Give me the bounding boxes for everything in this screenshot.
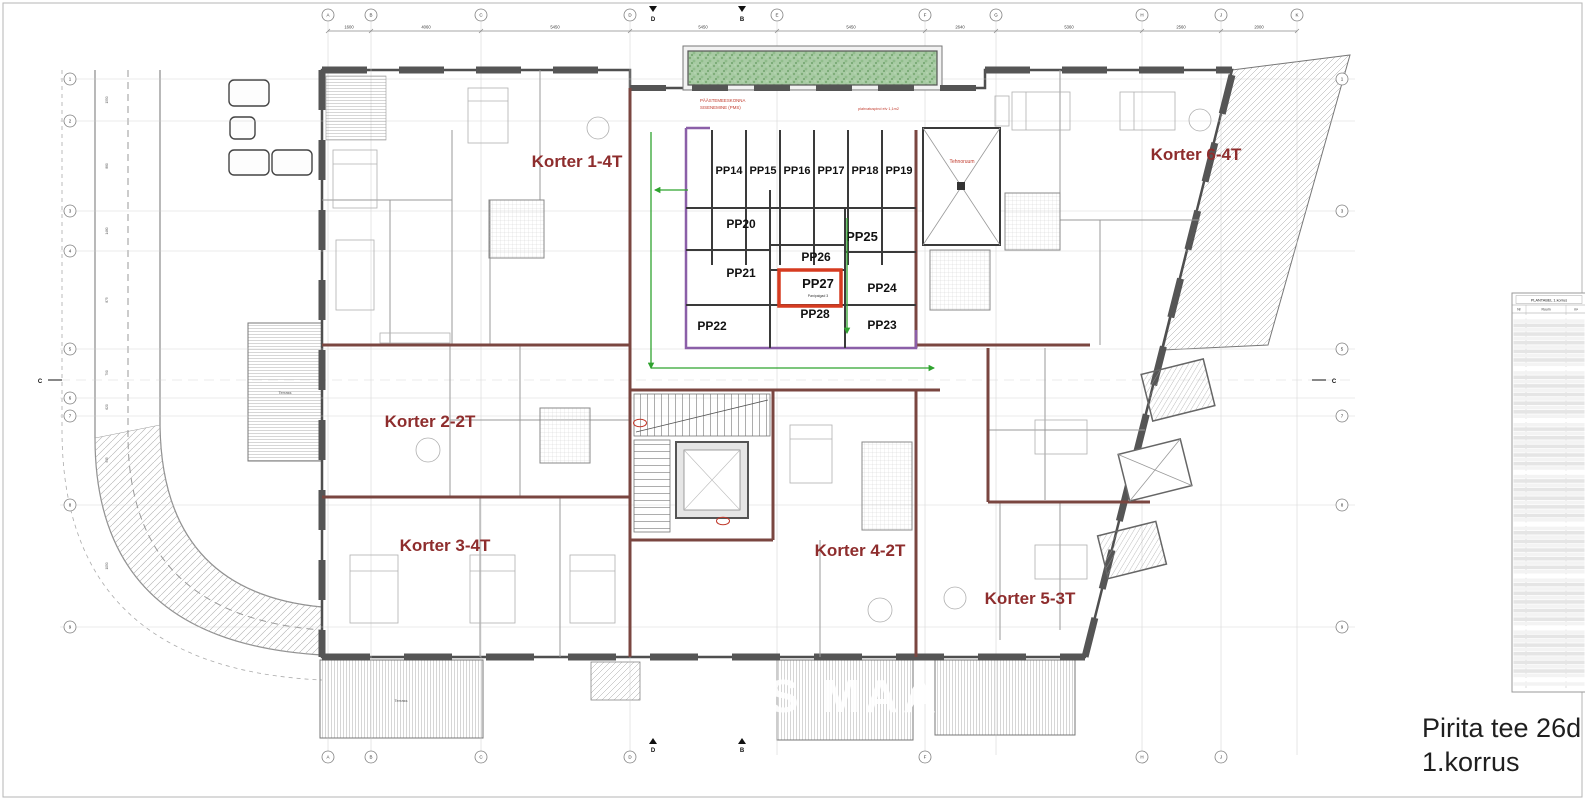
dimension: 790 — [105, 370, 109, 376]
grid-label: J — [1220, 755, 1222, 760]
storage-unit-label: PP25 — [846, 229, 878, 244]
apartment-label: Korter 4-2T — [815, 541, 906, 560]
grid-label: E — [775, 13, 778, 18]
grid-label: A — [326, 13, 329, 18]
grid-label: J — [1220, 13, 1222, 18]
rescue-note-line2: SISENEMINE (PMS) — [700, 105, 741, 110]
dimension: 2000 — [1254, 25, 1264, 30]
rescue-note-line1: PÄÄSTEMEESKONNA — [700, 98, 745, 103]
dimension: 1550 — [105, 96, 109, 103]
dimension: 5450 — [846, 25, 856, 30]
dimension: 2640 — [955, 25, 965, 30]
terrace-label: Terrass — [278, 390, 291, 395]
storage-unit-label: PP26 — [801, 250, 831, 264]
tech-room-label: Tehnoruum — [949, 159, 974, 165]
storage-unit-label: PP21 — [726, 266, 756, 280]
grid-label: B — [369, 755, 372, 760]
storage-unit-label: PP28 — [800, 307, 830, 321]
dimension: 4060 — [421, 25, 431, 30]
dimension: 5450 — [550, 25, 560, 30]
dimension: 5360 — [1064, 25, 1074, 30]
storage-unit-label: PP22 — [697, 319, 727, 333]
section-marker-label: C — [1332, 379, 1337, 385]
dimension: 5450 — [698, 25, 708, 30]
storage-unit-label: PP14 — [716, 165, 744, 177]
room-schedule-table: PLANTABEL 1.korrus Nr Ruum m² — [1512, 293, 1585, 692]
storage-unit-label: PP24 — [867, 281, 897, 295]
section-marker-label: C — [38, 379, 43, 385]
dimension: 620 — [105, 404, 109, 410]
section-marker-label: D — [651, 748, 656, 754]
section-marker-label: B — [740, 748, 745, 754]
grid-label: H — [1140, 13, 1143, 18]
watermark: S MAA — [768, 670, 941, 722]
floor-plan-sheet: A B C D E F G H J K 1600 4060 5450 5450 … — [0, 0, 1585, 800]
apartment-label: Korter 1-4T — [532, 152, 623, 171]
apartment-label: Korter 2-2T — [385, 412, 476, 431]
grid-label: B — [369, 13, 372, 18]
section-marker-label: D — [651, 17, 656, 23]
technical-room: Tehnoruum — [923, 128, 1000, 245]
grid-label: A — [326, 755, 329, 760]
grid-label: H — [1140, 755, 1143, 760]
terrace-bottom-right — [935, 660, 1075, 735]
planter-strip — [683, 46, 942, 90]
sheet-title-address: Pirita tee 26d — [1422, 713, 1581, 743]
terrace-small — [591, 662, 640, 700]
section-marker-label: B — [740, 17, 745, 23]
dimension: 875 — [105, 297, 109, 303]
blast-note: plahvatuspind elv 1,1m2 — [858, 107, 899, 111]
storage-unit-label: PP23 — [867, 318, 897, 332]
storage-unit-label-highlighted: PP27 — [802, 276, 834, 291]
dimension: 2560 — [1176, 25, 1186, 30]
table-title: PLANTABEL 1.korrus — [1531, 299, 1567, 303]
grid-label: F — [924, 755, 927, 760]
dimension: 1600 — [344, 25, 354, 30]
dimension: 1480 — [105, 227, 109, 234]
grid-label: K — [1295, 13, 1298, 18]
storage-unit-label: PP17 — [818, 165, 845, 177]
dimension: 1050 — [105, 562, 109, 569]
apartment-label: Korter 3-4T — [400, 536, 491, 555]
storage-unit-label: PP19 — [886, 165, 913, 177]
sheet-title-floor: 1.korrus — [1422, 747, 1520, 777]
apartment-label: Korter 5-3T — [985, 589, 1076, 608]
storage-unit-label: PP20 — [726, 217, 756, 231]
table-column-header: Ruum — [1541, 308, 1550, 312]
storage-unit-label: PP16 — [784, 165, 811, 177]
grid-label: G — [994, 13, 998, 18]
storage-unit-label: PP15 — [750, 165, 777, 177]
terrace-label: Terrass — [394, 698, 407, 703]
storage-note: Panipaigad 3 — [808, 294, 828, 298]
wardrobe — [326, 76, 386, 140]
dimension: 935 — [105, 457, 109, 463]
apartment-label: Korter 6-4T — [1151, 145, 1242, 164]
dimension: 880 — [105, 163, 109, 169]
grid-label: F — [924, 13, 927, 18]
storage-unit-label: PP18 — [852, 165, 879, 177]
